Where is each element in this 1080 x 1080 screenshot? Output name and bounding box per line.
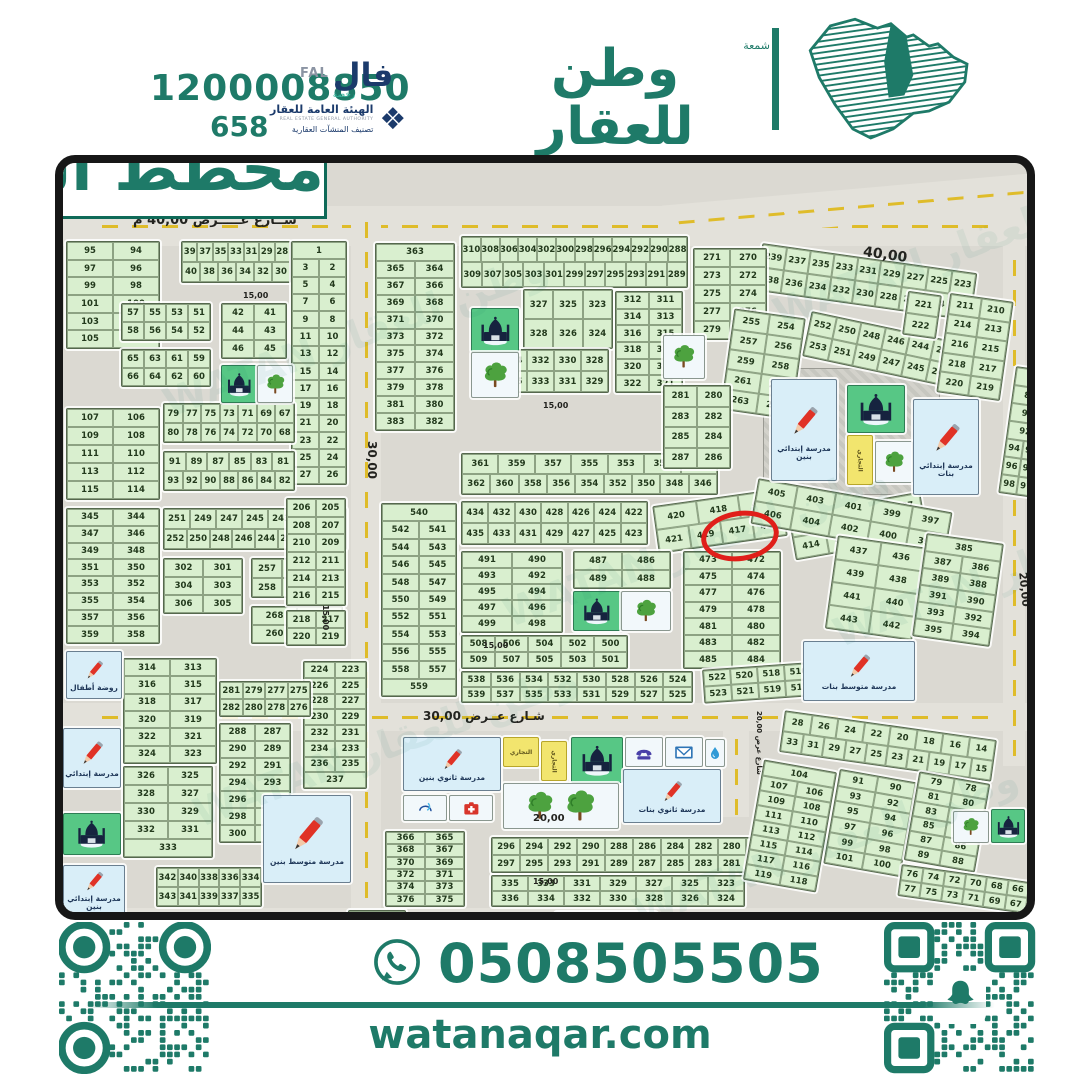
plot-358: 358 (113, 626, 159, 643)
road-segment (63, 908, 1027, 920)
plot-237: 237 (784, 248, 811, 274)
qr-code-left[interactable] (55, 920, 215, 1075)
plot-row: 281280 (664, 386, 730, 407)
fal-en-label: FAL (300, 66, 329, 81)
plot-row: 1 (292, 242, 346, 259)
plot-493: 493 (462, 568, 512, 584)
plot-288: 288 (668, 237, 687, 262)
plot-352: 352 (604, 474, 632, 494)
plot-495: 495 (462, 584, 512, 600)
mosque-icon (479, 314, 512, 347)
plot-251: 251 (164, 509, 190, 529)
plot-481: 481 (684, 618, 732, 635)
plot-301: 301 (544, 262, 564, 287)
pencil-icon (785, 399, 823, 445)
plot-row: 322321 (124, 728, 216, 745)
plot-432: 432 (488, 502, 514, 523)
plot-358: 358 (519, 474, 547, 494)
plot-423: 423 (621, 523, 647, 544)
plot-312: 312 (616, 292, 649, 309)
plot-31: 31 (244, 242, 259, 262)
plot-row: 495494 (462, 584, 562, 600)
plot-row: 435433431429427425423 (462, 523, 647, 544)
plot-row: 477476 (684, 585, 780, 602)
plot-row: 214213 (287, 570, 345, 588)
plot-row: 324323 (124, 746, 216, 763)
plot-532: 532 (548, 672, 577, 687)
plot-row: 479478 (684, 602, 780, 619)
plot-348: 348 (113, 543, 159, 560)
plot-324: 324 (124, 746, 170, 763)
plot-507: 507 (495, 652, 528, 668)
plot-53: 53 (166, 304, 188, 322)
plot-359: 359 (67, 626, 113, 643)
plot-328: 328 (636, 891, 672, 906)
plot-301: 301 (203, 559, 242, 577)
plot-block: 366365368367370369372371374373376375 (385, 831, 465, 907)
plot-307: 307 (482, 262, 502, 287)
plot-374: 374 (415, 345, 454, 362)
plot-block: 4344324304284264244224354334314294274254… (461, 501, 648, 545)
plot-block: 221222 (902, 291, 942, 339)
plot-479: 479 (684, 602, 732, 619)
commercial-label: التجاري (550, 750, 557, 772)
plot-258: 258 (252, 578, 282, 597)
plot-row: 509507505503501 (462, 652, 627, 668)
plot-435: 435 (462, 523, 488, 544)
school-block: مدرسة إبتدائي بنين (63, 865, 125, 915)
mosque-icon (996, 814, 1021, 839)
plot-538: 538 (462, 672, 491, 687)
plot-row: 374373 (386, 881, 464, 893)
plot-339: 339 (199, 887, 220, 906)
plot-219: 219 (316, 628, 345, 645)
plot-42: 42 (222, 304, 254, 322)
plot-block: 342340338336334343341339337335 (156, 867, 262, 907)
mosque-icon (76, 818, 107, 849)
plot-383: 383 (376, 413, 415, 430)
commercial-block: التجاري (503, 737, 539, 767)
plot-425: 425 (594, 523, 620, 544)
plot-350: 350 (113, 559, 159, 576)
plot-359: 359 (498, 454, 534, 474)
plot-row: 290289 (220, 741, 290, 758)
map-title-box: مخطط الـ (57, 155, 327, 219)
pencil-icon (836, 651, 882, 683)
plot-row: 559 (382, 679, 456, 696)
plot-9: 9 (292, 311, 319, 328)
plot-85: 85 (229, 452, 251, 471)
plot-282: 282 (220, 699, 243, 716)
plot-57: 57 (122, 304, 144, 322)
plot-block: 281279277275282280278276 (219, 681, 311, 717)
plot-325: 325 (168, 767, 212, 785)
plot-row: 4443 (222, 322, 286, 340)
plot-row: 355354 (67, 593, 159, 610)
plot-428: 428 (541, 502, 567, 523)
plot-303: 303 (523, 262, 543, 287)
plot-60: 60 (188, 368, 210, 386)
plot-490: 490 (512, 552, 562, 568)
plot-row: 538536534532530528526524 (462, 672, 692, 687)
plot-482: 482 (732, 635, 780, 652)
plot-537: 537 (491, 687, 520, 702)
plot-299: 299 (564, 262, 584, 287)
plot-291: 291 (255, 758, 290, 775)
plot-442: 442 (869, 611, 915, 640)
plot-250: 250 (187, 529, 210, 549)
plot-61: 61 (166, 350, 188, 368)
plot-491: 491 (462, 552, 512, 568)
whatsapp-icon (370, 935, 424, 993)
plot-103: 103 (67, 313, 113, 331)
plot-row: 365364 (376, 261, 454, 278)
plot-486: 486 (622, 552, 670, 570)
plot-306: 306 (500, 237, 519, 262)
plot-25: 25 (864, 743, 888, 766)
plot-351: 351 (67, 559, 113, 576)
mosque-block (571, 737, 623, 783)
plot-95: 95 (1019, 459, 1035, 479)
plot-461: 461 (349, 911, 377, 920)
plot-295: 295 (520, 855, 548, 872)
plot-row: 1312 (292, 346, 346, 363)
plot-337: 337 (219, 887, 240, 906)
plot-13: 13 (292, 346, 319, 363)
plot-row: 497496 (462, 600, 562, 616)
plot-211: 211 (316, 552, 345, 570)
plot-534: 534 (520, 672, 549, 687)
plot-80: 80 (164, 423, 183, 442)
plot-block: 327325323328326324 (523, 289, 613, 349)
plot-69: 69 (983, 892, 1006, 910)
street-label: شارع عرض 20,00 (123, 911, 233, 920)
plot-74: 74 (220, 423, 239, 442)
plot-block: 487486489488 (573, 551, 671, 589)
plot-540: 540 (382, 504, 456, 521)
plot-368: 368 (415, 295, 454, 312)
plot-row: 371370 (376, 312, 454, 329)
plot-20: 20 (319, 415, 346, 432)
plot-277: 277 (694, 303, 730, 321)
plot-block: 437436439438441440443442 (825, 535, 925, 640)
plot-485: 485 (684, 651, 732, 668)
plot-row: 359358 (67, 626, 159, 643)
plot-350: 350 (632, 474, 660, 494)
plot-290: 290 (577, 838, 605, 855)
commercial-label: التجاري (510, 749, 532, 756)
plot-309: 309 (462, 262, 482, 287)
plot-519: 519 (758, 681, 786, 699)
plot-108: 108 (113, 427, 159, 445)
plot-224: 224 (304, 662, 335, 678)
plot-246: 246 (232, 529, 255, 549)
plot-207: 207 (316, 517, 345, 535)
plot-row: 381380 (376, 396, 454, 413)
license-number: 658 (210, 110, 268, 143)
plot-501: 501 (594, 652, 627, 668)
plot-row: 540 (382, 504, 456, 521)
plot-row: 347346 (67, 526, 159, 543)
plot-row: 343341339337335 (157, 887, 261, 906)
plot-110: 110 (113, 445, 159, 463)
plot-10: 10 (319, 328, 346, 345)
plot-row: 493492 (462, 568, 562, 584)
whatsapp-contact[interactable]: 0508505505 (370, 932, 824, 995)
website-link[interactable]: watanaqar.com (340, 1012, 740, 1058)
plot-row: 271270 (694, 249, 766, 267)
plot-323: 323 (708, 876, 744, 891)
plot-298: 298 (220, 808, 255, 825)
plot-421: 421 (657, 525, 692, 552)
plot-328: 328 (524, 319, 553, 348)
plot-330: 330 (124, 803, 168, 821)
plot-551: 551 (419, 609, 456, 626)
plot-77: 77 (899, 880, 922, 898)
plot-427: 427 (568, 523, 594, 544)
plot-360: 360 (490, 474, 518, 494)
plot-row: 297295293291289287285283281279 (492, 855, 774, 872)
plot-294: 294 (612, 237, 631, 262)
plot-17: 17 (948, 755, 972, 778)
plot-row: 483482 (684, 635, 780, 652)
tree-icon (668, 341, 699, 372)
plot-231: 231 (335, 725, 366, 741)
plot-row: 362360358356354352350348346 (462, 474, 717, 494)
plot-21: 21 (906, 749, 930, 772)
commercial-label: التجاري (856, 449, 863, 471)
saudi-arabia-map-icon (792, 8, 992, 152)
plot-row: 230229 (304, 709, 366, 725)
plot-map: مخطط الـ 3937353331292840383634323013254… (55, 155, 1035, 920)
plot-548: 548 (382, 574, 419, 591)
plot-row: 377376 (376, 362, 454, 379)
plot-313: 313 (170, 659, 216, 676)
plot-330: 330 (554, 350, 581, 371)
plot-block: 461460 (348, 910, 406, 920)
plot-366: 366 (415, 278, 454, 295)
plot-533: 533 (548, 687, 577, 702)
plot-365: 365 (425, 832, 464, 844)
tree-block (621, 591, 671, 631)
plot-row: 282280278276 (220, 699, 310, 716)
plot-15: 15 (292, 363, 319, 380)
plot-block: 2242232262252282272302292322312342332362… (303, 661, 367, 789)
plot-25: 25 (292, 449, 319, 466)
plot-295: 295 (605, 262, 625, 287)
plot-487: 487 (574, 552, 622, 570)
plot-block: 91909392959497969998101100 (823, 769, 916, 877)
plot-326: 326 (672, 891, 708, 906)
plot-row: 542541 (382, 521, 456, 538)
plot-293: 293 (626, 262, 646, 287)
plot-280: 280 (718, 838, 746, 855)
mosque-block (63, 813, 121, 855)
plot-row: 342340338336334 (157, 868, 261, 887)
plot-row: 1514 (292, 363, 346, 380)
plot-317: 317 (170, 694, 216, 711)
plot-2: 2 (319, 259, 346, 276)
plot-348: 348 (660, 474, 688, 494)
plot-65: 65 (122, 350, 144, 368)
plot-block: 281280283282285284287286 (663, 385, 731, 469)
commercial-block: التجاري (541, 741, 567, 781)
tree-icon (478, 358, 512, 392)
plot-543: 543 (419, 539, 456, 556)
school-block: مدرسة ثانوي بنات (623, 769, 721, 823)
plot-271: 271 (694, 249, 730, 267)
plot-338: 338 (199, 868, 220, 887)
plot-485: 485 (581, 913, 606, 920)
plot-373: 373 (376, 329, 415, 346)
plot-216: 216 (287, 587, 316, 605)
plot-322: 322 (616, 375, 649, 392)
plot-433: 433 (488, 523, 514, 544)
street-label: 15,00 (321, 605, 330, 630)
plot-35: 35 (213, 242, 228, 262)
plot-row: 558557 (382, 661, 456, 678)
plot-313: 313 (649, 309, 682, 326)
plot-335: 335 (492, 876, 528, 891)
plot-220: 220 (937, 372, 970, 396)
plot-row: 487485483481 (556, 913, 656, 920)
plot-429: 429 (541, 523, 567, 544)
plot-290: 290 (220, 741, 255, 758)
school-label: مدرسة إبتدائي (65, 770, 119, 778)
plot-323: 323 (170, 746, 216, 763)
plot-row: 351350 (67, 559, 159, 576)
plot-556: 556 (382, 644, 419, 661)
whatsapp-number[interactable]: 0508505505 (438, 932, 824, 995)
plot-232: 232 (828, 277, 855, 303)
plot-368: 368 (386, 844, 425, 856)
plot-380: 380 (415, 396, 454, 413)
plot-30: 30 (272, 262, 290, 282)
plot-row: 475474 (684, 569, 780, 586)
plot-16: 16 (319, 380, 346, 397)
logo-block (403, 795, 447, 821)
street-label: 30,00 (365, 441, 379, 479)
plot-232: 232 (304, 725, 335, 741)
plot-424: 424 (594, 502, 620, 523)
plot-334: 334 (240, 868, 261, 887)
plot-row: 487486 (574, 552, 670, 570)
plot-row: 320319 (124, 711, 216, 728)
plot-478: 478 (732, 602, 780, 619)
authority-sub-ar: تصنيف المنشآت العقارية (270, 125, 373, 135)
plot-489: 489 (574, 570, 622, 588)
plot-36: 36 (218, 262, 236, 282)
plot-row: 2726 (292, 467, 346, 484)
plot-46: 46 (222, 340, 254, 358)
plot-230: 230 (851, 280, 878, 306)
fal-license-logo: FAL فال رخصة (300, 60, 393, 100)
plot-248: 248 (210, 529, 233, 549)
plot-293: 293 (255, 775, 290, 792)
plot-row: 302301 (164, 559, 242, 577)
plot-block: 326325328327330329332331333 (123, 766, 213, 858)
plot-58: 58 (122, 322, 144, 340)
plot-23: 23 (885, 746, 909, 769)
plot-474: 474 (732, 569, 780, 586)
plot-78: 78 (183, 423, 202, 442)
plot-336: 336 (492, 891, 528, 906)
plot-480: 480 (732, 618, 780, 635)
plot-row: 345344 (67, 509, 159, 526)
authority-name-ar: الهيئة العامة للعقار (270, 105, 373, 115)
mosque-block (847, 385, 905, 433)
authority-name-en: REAL ESTATE GENERAL AUTHORITY (270, 115, 373, 125)
commercial-block: التجاري (847, 435, 873, 485)
plot-93: 93 (164, 471, 183, 490)
plot-row: 556555 (382, 644, 456, 661)
plot-329: 329 (600, 876, 636, 891)
plot-56: 56 (144, 322, 166, 340)
plot-555: 555 (419, 644, 456, 661)
plot-353: 353 (67, 576, 113, 593)
plot-281: 281 (664, 386, 697, 407)
plot-97: 97 (1016, 477, 1035, 497)
plot-52: 52 (188, 322, 210, 340)
school-label: مدرسة ثانوي بنين (419, 774, 485, 782)
school-label: روضة أطفال (70, 684, 118, 692)
mosque-block (221, 365, 257, 403)
plot-529: 529 (606, 687, 635, 702)
plot-row: 1716 (292, 380, 346, 397)
plot-283: 283 (689, 855, 717, 872)
plot-527: 527 (635, 687, 664, 702)
plot-115: 115 (67, 481, 113, 499)
plot-287: 287 (664, 448, 697, 469)
plot-483: 483 (684, 635, 732, 652)
tree-block (663, 335, 705, 379)
plot-row: 2120 (292, 415, 346, 432)
road-center-dash (1013, 256, 1016, 755)
plot-row: 333 (124, 839, 212, 857)
plot-289: 289 (605, 855, 633, 872)
plot-row: 283282 (664, 407, 730, 428)
plot-215: 215 (316, 587, 345, 605)
plot-69: 69 (257, 404, 276, 423)
plot-26: 26 (319, 467, 346, 484)
plot-14: 14 (319, 363, 346, 380)
plot-row: 228227 (304, 694, 366, 710)
plot-row: 237 (304, 772, 366, 788)
plot-55: 55 (144, 304, 166, 322)
plot-block: 1041071061091081111101131121151141171161… (743, 760, 837, 893)
plot-300: 300 (220, 825, 255, 842)
plot-526: 526 (635, 672, 664, 687)
plot-285: 285 (664, 427, 697, 448)
plot-row: 292291 (220, 758, 290, 775)
plot-1: 1 (292, 242, 346, 259)
plot-17: 17 (292, 380, 319, 397)
qr-code-snapchat[interactable] (880, 920, 1040, 1075)
plot-222: 222 (903, 313, 938, 338)
road-center-dash (102, 918, 989, 921)
plot-378: 378 (415, 379, 454, 396)
plot-336: 336 (219, 868, 240, 887)
brand-side-text: شمعة (756, 40, 770, 52)
plot-227: 227 (335, 694, 366, 710)
plot-21: 21 (292, 415, 319, 432)
school-label: مدرسة متوسط بنين (270, 858, 344, 866)
plot-279: 279 (243, 682, 266, 699)
plot-block: 491490493492495494497496499498 (461, 551, 563, 633)
plot-363: 363 (376, 244, 454, 261)
street-label: 15,00 (483, 641, 508, 650)
plot-row: 285284 (664, 427, 730, 448)
